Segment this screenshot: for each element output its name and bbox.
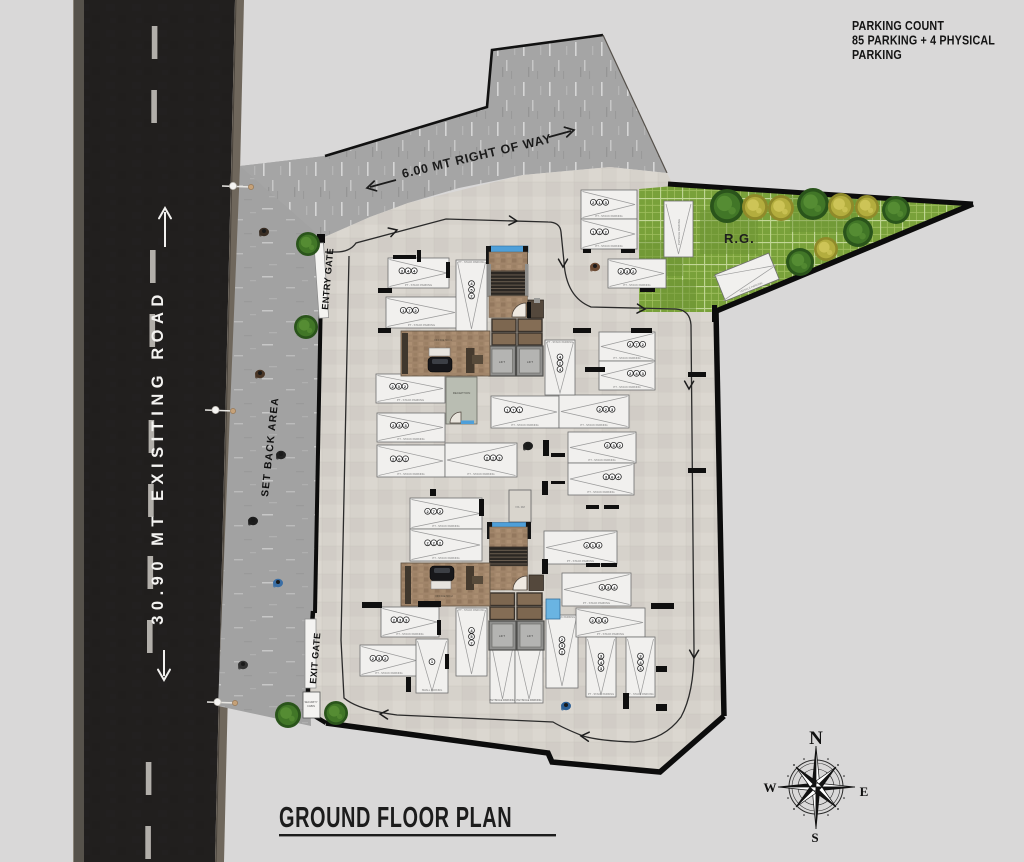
svg-text:R.G.: R.G. [724, 231, 755, 246]
svg-text:PHYSICLE PARKING: PHYSICLE PARKING [516, 698, 541, 702]
svg-text:PT - STACK PARKING: PT - STACK PARKING [613, 356, 640, 360]
svg-text:PT - STACK PARKING: PT - STACK PARKING [547, 340, 573, 344]
svg-text:PT - STACK PARKING: PT - STACK PARKING [458, 260, 484, 264]
svg-text:CABIN: CABIN [307, 704, 315, 708]
svg-text:LIFT: LIFT [527, 634, 533, 638]
svg-text:PT - STACK PARKING: PT - STACK PARKING [597, 632, 624, 636]
svg-text:PT - STACK PARKING: PT - STACK PARKING [588, 458, 615, 462]
svg-text:RECEPTION: RECEPTION [453, 391, 471, 395]
svg-text:SMALL PARKING: SMALL PARKING [422, 688, 443, 692]
svg-text:PT - STACK PARKING: PT - STACK PARKING [405, 283, 432, 287]
svg-text:PT - STACK PARKING: PT - STACK PARKING [595, 244, 622, 248]
svg-text:OFFICE NO.1: OFFICE NO.1 [434, 338, 452, 342]
svg-text:PHYSICLE PARKING: PHYSICLE PARKING [677, 219, 681, 245]
svg-text:PT - STACK PARKING: PT - STACK PARKING [375, 671, 402, 675]
svg-text:LIFT: LIFT [499, 360, 505, 364]
svg-text:S: S [811, 830, 818, 845]
svg-text:PT - STACK PARKING: PT - STACK PARKING [458, 608, 484, 612]
svg-text:PT - STACK PARKING: PT - STACK PARKING [432, 524, 459, 528]
svg-text:85 PARKING + 4 PHYSICAL: 85 PARKING + 4 PHYSICAL [852, 34, 995, 48]
svg-text:PT - STACK PARKING: PT - STACK PARKING [396, 632, 423, 636]
svg-text:PT - STACK PARKING: PT - STACK PARKING [408, 323, 435, 327]
svg-text:PT - STACK PARKING: PT - STACK PARKING [613, 385, 640, 389]
svg-text:SECURITY: SECURITY [304, 700, 317, 704]
svg-text:E: E [860, 784, 869, 799]
svg-text:N: N [809, 728, 823, 749]
svg-text:PT - STACK PARKING: PT - STACK PARKING [511, 423, 538, 427]
svg-text:OFFICE NO.2: OFFICE NO.2 [435, 594, 453, 598]
svg-text:PT - STACK PARKING: PT - STACK PARKING [627, 692, 653, 696]
svg-text:PT - STACK PARKING: PT - STACK PARKING [397, 437, 424, 441]
svg-text:PT - STACK PARKING: PT - STACK PARKING [432, 556, 459, 560]
svg-text:GROUND FLOOR PLAN: GROUND FLOOR PLAN [279, 803, 512, 834]
svg-text:PT - STACK PARKING: PT - STACK PARKING [397, 398, 424, 402]
svg-text:PT - STACK PARKING: PT - STACK PARKING [397, 472, 424, 476]
svg-text:PARKING COUNT: PARKING COUNT [852, 19, 944, 33]
svg-text:LIFT: LIFT [499, 634, 505, 638]
svg-text:PT - STACK PARKING: PT - STACK PARKING [587, 490, 614, 494]
svg-text:PARKING: PARKING [852, 48, 902, 62]
svg-text:PT - STACK PARKING: PT - STACK PARKING [583, 601, 610, 605]
svg-text:30.90 MT EXISITING ROAD: 30.90 MT EXISITING ROAD [149, 289, 167, 625]
svg-text:PT - STACK PARKING: PT - STACK PARKING [467, 472, 494, 476]
svg-text:PHYSICLE PARKING: PHYSICLE PARKING [489, 698, 514, 702]
svg-text:PT - STACK PARKING: PT - STACK PARKING [623, 283, 650, 287]
svg-text:PT - STACK PARKING: PT - STACK PARKING [588, 692, 614, 696]
svg-text:PT - STACK PARKING: PT - STACK PARKING [580, 423, 607, 427]
svg-text:W: W [764, 780, 777, 795]
svg-text:PT - STACK PARKING: PT - STACK PARKING [567, 559, 594, 563]
svg-text:LIFT: LIFT [527, 360, 533, 364]
svg-text:PT - STACK PARKING: PT - STACK PARKING [595, 214, 622, 218]
svg-text:VIS. RM: VIS. RM [515, 505, 525, 509]
